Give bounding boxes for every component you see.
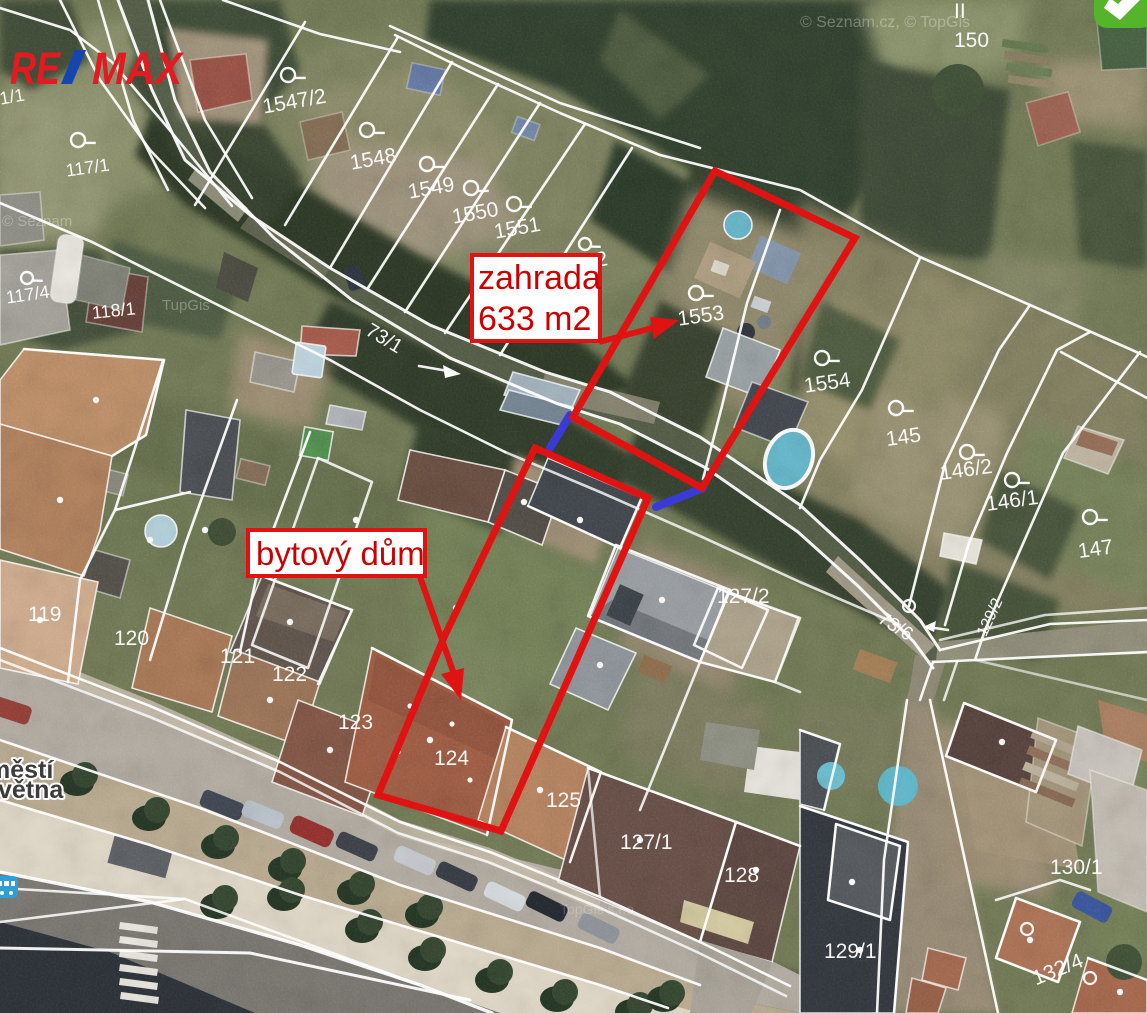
- svg-text:120: 120: [114, 627, 149, 650]
- svg-text:větna: větna: [0, 776, 64, 804]
- svg-text:121: 121: [220, 645, 255, 668]
- svg-text:zahrada: zahrada: [478, 259, 601, 297]
- svg-text:124: 124: [434, 747, 469, 770]
- svg-text:© Seznam: © Seznam: [2, 213, 72, 230]
- svg-text:TupGis: TupGis: [162, 297, 210, 314]
- svg-text:© Seznam.cz, © TopGis: © Seznam.cz, © TopGis: [800, 14, 970, 31]
- svg-text:RE: RE: [10, 43, 62, 94]
- svg-text:122: 122: [272, 663, 307, 686]
- svg-text:633 m2: 633 m2: [478, 300, 591, 338]
- svg-text:123: 123: [338, 711, 373, 734]
- svg-text:TopGis s.r.o.: TopGis s.r.o.: [560, 901, 638, 917]
- svg-text:130/1: 130/1: [1050, 856, 1103, 879]
- svg-text:150: 150: [954, 29, 989, 52]
- svg-text:127/1: 127/1: [620, 831, 673, 854]
- svg-text:145: 145: [884, 423, 922, 451]
- svg-text:129/1: 129/1: [824, 940, 877, 963]
- svg-text:119: 119: [28, 603, 61, 626]
- svg-text:125: 125: [546, 789, 581, 812]
- svg-text:bytový dům: bytový dům: [256, 535, 425, 572]
- svg-text:128: 128: [724, 864, 759, 887]
- svg-text:147: 147: [1076, 535, 1114, 563]
- svg-text:127/2: 127/2: [717, 585, 770, 608]
- svg-text:MAX: MAX: [92, 43, 185, 94]
